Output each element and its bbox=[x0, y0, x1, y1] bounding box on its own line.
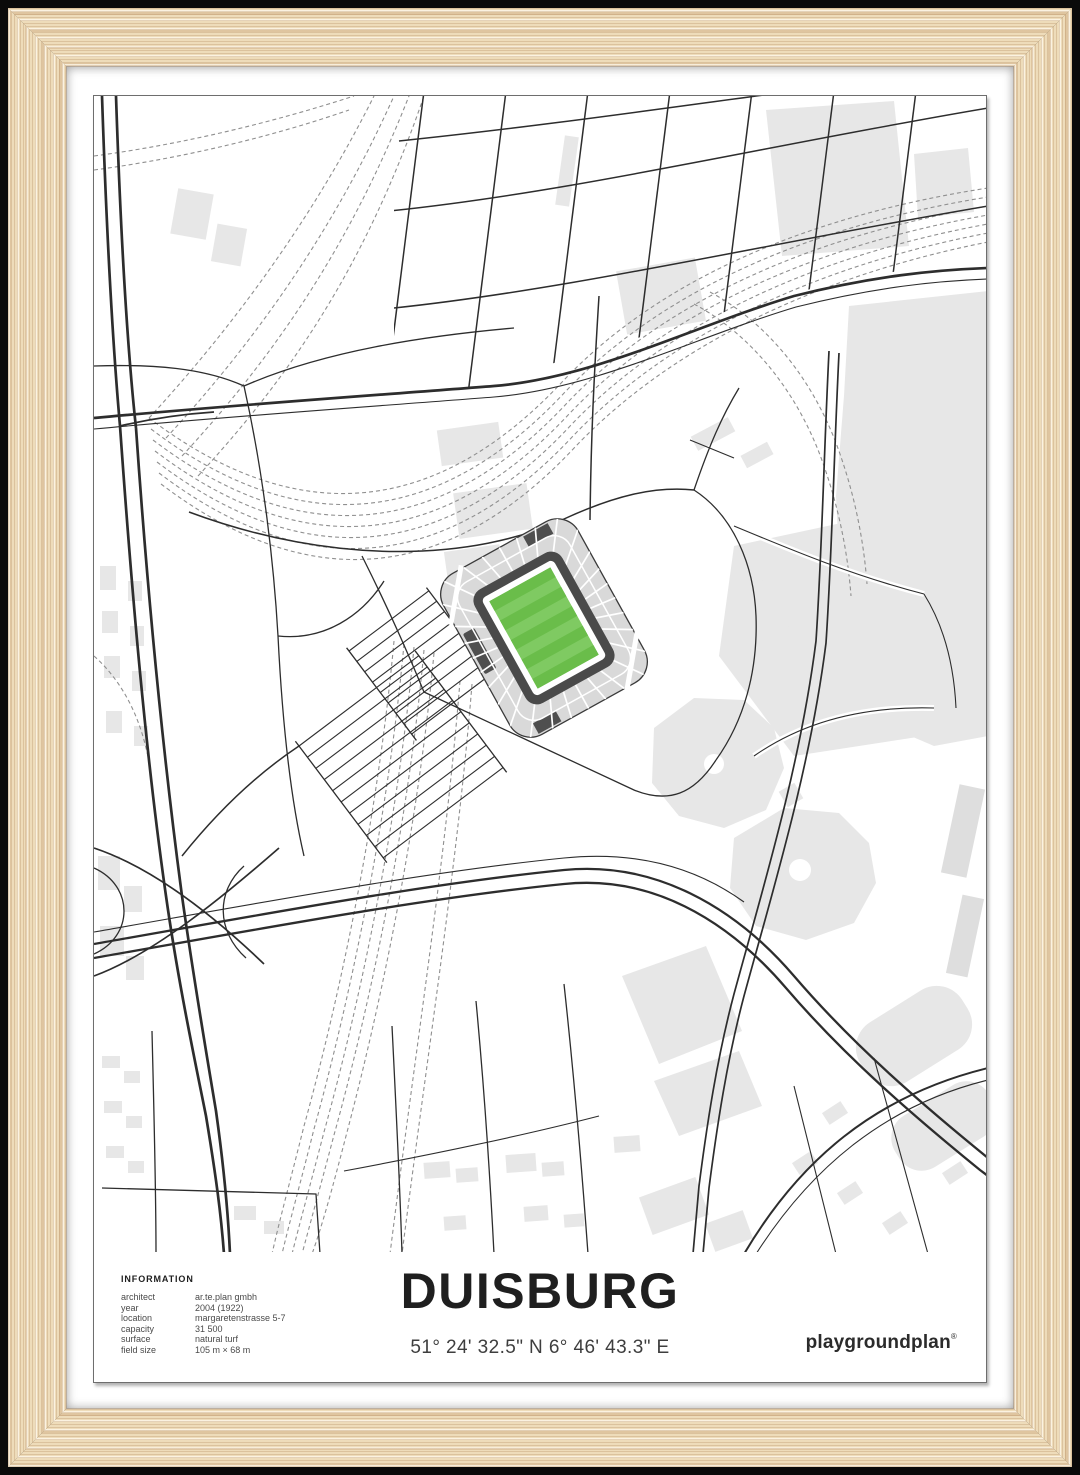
poster: INFORMATION architect ar.te.plan gmbh ye… bbox=[93, 95, 987, 1383]
frame-right bbox=[1014, 8, 1072, 1467]
brand-logo: playgroundplan® bbox=[806, 1332, 957, 1354]
frame-left bbox=[8, 8, 66, 1467]
registered-mark: ® bbox=[951, 1332, 957, 1341]
stadium-map bbox=[94, 96, 986, 1254]
map-svg bbox=[94, 96, 986, 1254]
info-label: capacity bbox=[121, 1324, 193, 1335]
brand-text: playgroundplan bbox=[806, 1332, 951, 1353]
frame-bottom bbox=[8, 1409, 1072, 1467]
framed-poster-photo: INFORMATION architect ar.te.plan gmbh ye… bbox=[0, 0, 1080, 1475]
highway-interchange bbox=[94, 848, 279, 976]
frame-top bbox=[8, 8, 1072, 66]
poster-title: DUISBURG bbox=[94, 1266, 986, 1316]
info-value: 31 500 bbox=[195, 1324, 286, 1335]
poster-footer: INFORMATION architect ar.te.plan gmbh ye… bbox=[94, 1252, 986, 1382]
